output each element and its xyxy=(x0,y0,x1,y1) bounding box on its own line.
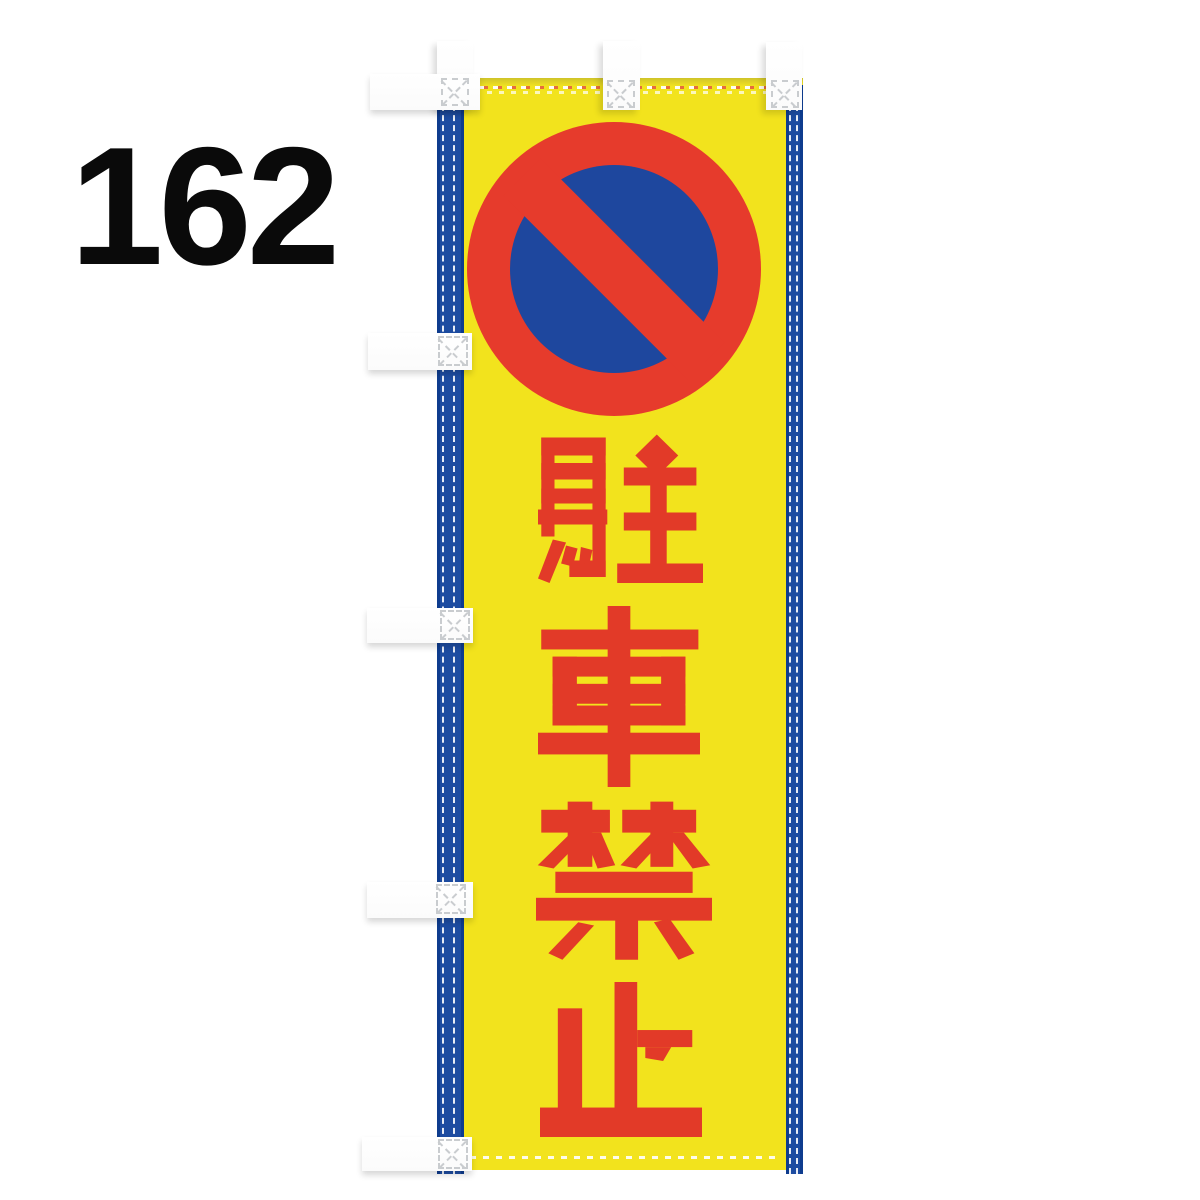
banner-kanji-1 xyxy=(538,433,703,583)
right-edge-band xyxy=(786,85,803,1174)
bottom-hem-stitch xyxy=(457,1156,781,1159)
stitch-x-icon xyxy=(440,610,470,640)
stitch-x-icon xyxy=(771,80,799,108)
nobori-banner: 駐車禁止 xyxy=(437,78,803,1170)
banner-kanji-4 xyxy=(540,982,702,1137)
no-parking-icon xyxy=(467,122,761,416)
stitch-x-icon xyxy=(438,1139,468,1169)
banner-kanji-2 xyxy=(538,606,700,787)
banner-kanji-3 xyxy=(536,800,712,963)
stitch-x-icon xyxy=(436,884,466,914)
item-number: 162 xyxy=(70,122,335,290)
stitch-x-icon xyxy=(438,336,468,366)
product-photo: 162 駐車禁止 xyxy=(0,0,1200,1200)
stitch-x-icon xyxy=(607,80,635,108)
stitch-x-icon xyxy=(441,78,469,106)
